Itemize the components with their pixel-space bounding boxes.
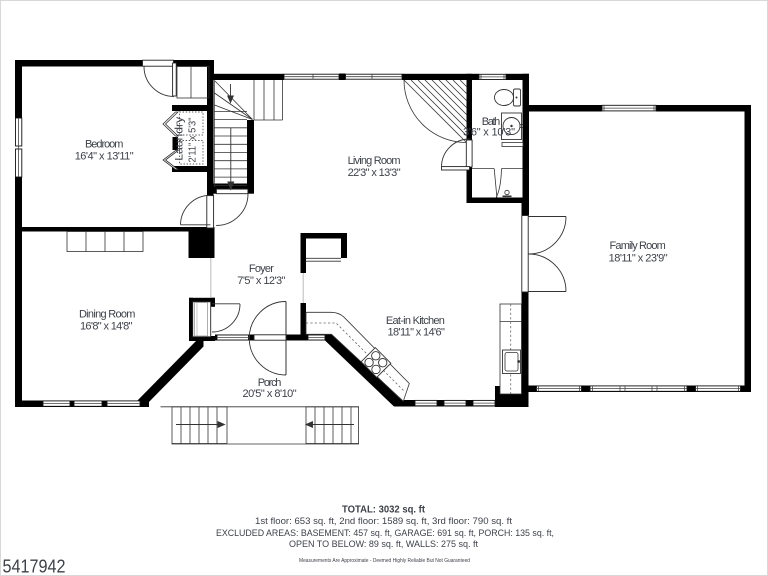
svg-text:5417942: 5417942	[3, 556, 66, 576]
svg-text:Dining Room: Dining Room	[79, 309, 136, 321]
svg-text:TOTAL: 3032 sq. ft: TOTAL: 3032 sq. ft	[342, 505, 426, 516]
svg-text:OPEN TO BELOW: 89 sq. ft, WALL: OPEN TO BELOW: 89 sq. ft, WALLS: 275 sq.…	[289, 539, 478, 550]
svg-text:22'3" x 13'3": 22'3" x 13'3"	[348, 167, 401, 179]
svg-text:Bedroom: Bedroom	[85, 139, 124, 151]
svg-text:Living Room: Living Room	[348, 155, 401, 167]
svg-text:3'6" x 10'3": 3'6" x 10'3"	[463, 127, 515, 139]
svg-text:1st floor: 653 sq. ft, 2nd flo: 1st floor: 653 sq. ft, 2nd floor: 1589 s…	[255, 516, 512, 527]
svg-text:EXCLUDED AREAS: BASEMENT: 457: EXCLUDED AREAS: BASEMENT: 457 sq. ft, GA…	[216, 528, 554, 539]
svg-text:Family Room: Family Room	[610, 240, 666, 252]
svg-text:16'8" x 14'8": 16'8" x 14'8"	[80, 321, 133, 333]
svg-text:Eat-in Kitchen: Eat-in Kitchen	[386, 315, 445, 327]
svg-text:20'5" x 8'10": 20'5" x 8'10"	[243, 388, 297, 400]
svg-text:18'11" x 14'6": 18'11" x 14'6"	[388, 327, 445, 339]
svg-text:7'5" x 12'3": 7'5" x 12'3"	[237, 275, 285, 287]
svg-text:Foyer: Foyer	[249, 263, 274, 275]
svg-text:16'4" x 13'11": 16'4" x 13'11"	[75, 151, 134, 163]
svg-text:Laundry: Laundry	[174, 116, 186, 161]
svg-text:Measurements Are Approximate -: Measurements Are Approximate - Deemed Hi…	[299, 558, 470, 564]
svg-text:2'11" x 5'3": 2'11" x 5'3"	[187, 117, 198, 162]
svg-text:18'11" x 23'9": 18'11" x 23'9"	[609, 253, 668, 265]
